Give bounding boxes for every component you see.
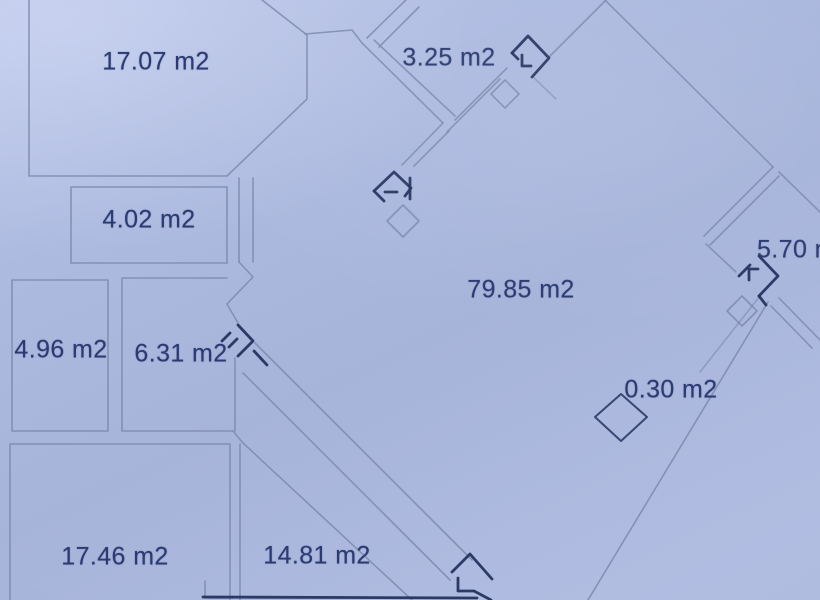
room-area-label: 4.02 m2 [102, 206, 195, 235]
wall-corridor-top [305, 30, 362, 43]
wall-room-4-ne [605, 0, 773, 167]
wall-room-4-se [588, 302, 768, 600]
room-area-label: 79.85 m2 [467, 276, 574, 305]
room-area-label: 3.25 m2 [402, 44, 495, 73]
wall-room-5-sw [706, 244, 736, 272]
wall-lines [10, 0, 820, 600]
room-area-label: 17.46 m2 [61, 543, 168, 572]
room-area-label: 14.81 m2 [263, 542, 370, 571]
wall-room-9-notch [205, 581, 233, 598]
floor-plan-drawing [0, 0, 820, 600]
room-area-label: 17.07 m2 [102, 48, 209, 77]
diamond-marker [727, 296, 757, 326]
wall-stub [533, 77, 556, 99]
room-area-label: 0.30 m2 [624, 376, 717, 405]
door-symbol-6-31 [222, 325, 267, 365]
wall-room-2-ne [549, 0, 606, 57]
wall-corridor-mid [239, 178, 253, 262]
wall-room-4-east [704, 167, 779, 245]
door-symbol-top [512, 36, 549, 77]
diamond-marker [387, 205, 419, 237]
wall-room-5-top [779, 172, 820, 212]
door-symbols [203, 36, 778, 600]
wall-room-9 [10, 444, 230, 600]
door-symbol-bottom [452, 554, 492, 600]
wall-corridor-west-door [402, 123, 449, 166]
wall-room-5-bottom [771, 298, 820, 348]
room-area-label: 4.96 m2 [14, 336, 107, 365]
room-area-label: 6.31 m2 [134, 340, 227, 369]
wall-room-1 [29, 0, 307, 176]
door-symbol-west [374, 172, 411, 201]
room-area-label: 5.70 m2 [757, 236, 820, 265]
floor-plan: 17.07 m2 3.25 m2 4.02 m2 79.85 m2 5.70 m… [0, 0, 820, 600]
bottom-edge-line [203, 597, 477, 598]
wall-room-7-east [227, 262, 253, 323]
wall-corridor-sw-1 [255, 343, 472, 560]
